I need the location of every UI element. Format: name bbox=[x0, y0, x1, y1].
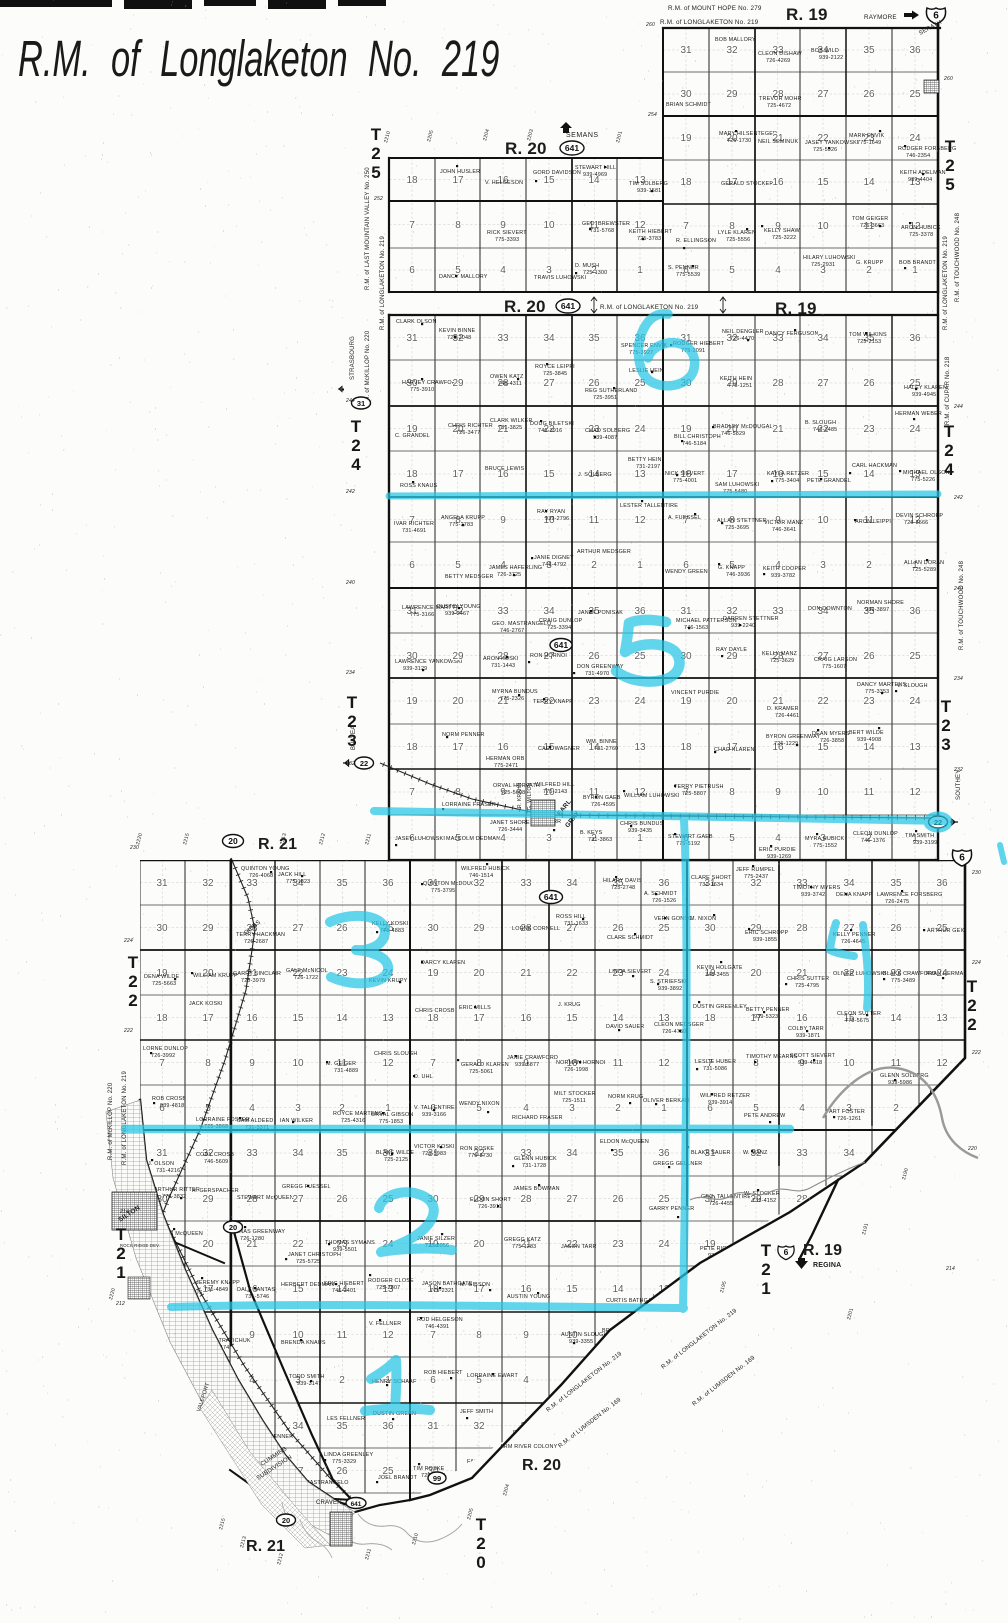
svg-text:27: 27 bbox=[566, 1194, 578, 1205]
svg-text:746-4792: 746-4792 bbox=[542, 562, 566, 568]
svg-text:T: T bbox=[941, 697, 952, 716]
svg-text:23: 23 bbox=[863, 696, 875, 707]
svg-text:ELDON SHORT: ELDON SHORT bbox=[470, 1197, 512, 1203]
svg-text:NORM KRUG: NORM KRUG bbox=[608, 1094, 643, 1100]
svg-text:19: 19 bbox=[406, 696, 418, 707]
svg-text:HERMAN ORB: HERMAN ORB bbox=[486, 756, 525, 762]
svg-text:LYLE KLAREN: LYLE KLAREN bbox=[718, 230, 756, 236]
svg-text:7: 7 bbox=[159, 1058, 165, 1069]
svg-text:20: 20 bbox=[202, 1239, 214, 1250]
svg-text:20: 20 bbox=[473, 1239, 485, 1250]
svg-text:26: 26 bbox=[612, 923, 624, 934]
svg-text:36: 36 bbox=[909, 606, 921, 617]
svg-text:10: 10 bbox=[817, 787, 829, 798]
svg-text:731-5768: 731-5768 bbox=[590, 228, 614, 234]
svg-text:BETTY MEDSGER: BETTY MEDSGER bbox=[445, 574, 494, 580]
svg-text:746-4391: 746-4391 bbox=[425, 1324, 449, 1330]
svg-text:939-3892: 939-3892 bbox=[658, 986, 682, 992]
svg-text:5: 5 bbox=[455, 560, 461, 571]
svg-text:731-2197: 731-2197 bbox=[636, 464, 660, 470]
svg-text:214: 214 bbox=[945, 1266, 955, 1272]
svg-text:775-3353: 775-3353 bbox=[865, 689, 889, 695]
svg-text:2: 2 bbox=[476, 1534, 485, 1553]
svg-text:2: 2 bbox=[866, 560, 872, 571]
svg-text:14: 14 bbox=[336, 1013, 348, 1024]
svg-text:GREGG KATZ: GREGG KATZ bbox=[504, 1237, 541, 1243]
svg-text:MALCOLM DEDMAN: MALCOLM DEDMAN bbox=[446, 836, 500, 842]
svg-text:R.M. of LONGLAKETON No. 219: R.M. of LONGLAKETON No. 219 bbox=[122, 1071, 128, 1165]
svg-text:99: 99 bbox=[433, 1474, 441, 1483]
svg-text:35: 35 bbox=[588, 333, 600, 344]
svg-text:36: 36 bbox=[658, 1148, 670, 1159]
svg-text:SAM ALDEED: SAM ALDEED bbox=[237, 1118, 273, 1124]
svg-text:13: 13 bbox=[634, 742, 646, 753]
svg-text:939-3897: 939-3897 bbox=[865, 607, 889, 613]
svg-text:CHRIS BUNDUS: CHRIS BUNDUS bbox=[620, 821, 664, 827]
svg-text:641: 641 bbox=[565, 143, 579, 153]
svg-text:20: 20 bbox=[229, 1223, 237, 1232]
svg-text:30: 30 bbox=[156, 923, 168, 934]
svg-text:CRAIG DUNLOP: CRAIG DUNLOP bbox=[539, 618, 583, 624]
svg-text:CHAD SOLBERG: CHAD SOLBERG bbox=[585, 428, 630, 434]
svg-text:WENDY NIXON: WENDY NIXON bbox=[459, 1101, 500, 1107]
svg-text:BRUCE LEWIS: BRUCE LEWIS bbox=[485, 466, 525, 472]
svg-text:726-3566: 726-3566 bbox=[904, 520, 928, 526]
svg-text:7: 7 bbox=[409, 220, 415, 231]
svg-text:AUSTIN SLOUGH: AUSTIN SLOUGH bbox=[561, 1332, 608, 1338]
svg-text:775-1607: 775-1607 bbox=[822, 664, 846, 670]
svg-text:LORNE CORNELL: LORNE CORNELL bbox=[512, 926, 560, 932]
svg-text:1: 1 bbox=[116, 1263, 125, 1282]
svg-text:16: 16 bbox=[520, 1013, 532, 1024]
svg-text:726-4470: 726-4470 bbox=[730, 336, 754, 342]
svg-text:9: 9 bbox=[775, 787, 781, 798]
svg-text:D. UHL: D. UHL bbox=[414, 1074, 433, 1080]
svg-text:939-2467: 939-2467 bbox=[445, 611, 469, 617]
svg-text:1: 1 bbox=[661, 1103, 667, 1114]
svg-text:775-2437: 775-2437 bbox=[744, 874, 768, 880]
svg-text:232: 232 bbox=[345, 761, 355, 767]
svg-text:641: 641 bbox=[554, 640, 568, 650]
svg-text:BETTY HEIN: BETTY HEIN bbox=[628, 457, 662, 463]
svg-text:24: 24 bbox=[634, 424, 646, 435]
svg-text:ERIC HIEBERT: ERIC HIEBERT bbox=[324, 1281, 365, 1287]
svg-text:11: 11 bbox=[613, 1058, 624, 1069]
svg-text:939-3199: 939-3199 bbox=[913, 840, 937, 846]
svg-text:222: 222 bbox=[971, 1050, 981, 1056]
svg-text:7: 7 bbox=[683, 221, 689, 232]
svg-text:775-2321: 775-2321 bbox=[430, 1288, 454, 1294]
svg-text:R. 19: R. 19 bbox=[775, 299, 817, 318]
svg-text:16: 16 bbox=[497, 742, 509, 753]
svg-text:14: 14 bbox=[863, 742, 875, 753]
svg-text:12: 12 bbox=[382, 1330, 394, 1341]
svg-text:NORM PENNER: NORM PENNER bbox=[442, 732, 485, 738]
svg-text:726-2687: 726-2687 bbox=[244, 939, 268, 945]
svg-text:23: 23 bbox=[588, 696, 600, 707]
svg-text:DOUG BILETSKI: DOUG BILETSKI bbox=[530, 421, 574, 427]
svg-text:725-1300: 725-1300 bbox=[583, 270, 607, 276]
svg-text:CLEON DISHAW: CLEON DISHAW bbox=[758, 51, 803, 57]
svg-text:25: 25 bbox=[658, 1194, 670, 1205]
svg-text:34: 34 bbox=[843, 878, 855, 889]
svg-text:20: 20 bbox=[726, 696, 738, 707]
svg-text:BRADLEY McDOUGALL: BRADLEY McDOUGALL bbox=[713, 424, 776, 430]
svg-text:244: 244 bbox=[345, 398, 355, 404]
svg-text:725-3951: 725-3951 bbox=[593, 395, 617, 401]
svg-text:234: 234 bbox=[345, 670, 355, 676]
svg-text:BLAKE SAUER: BLAKE SAUER bbox=[691, 1150, 731, 1156]
svg-text:HERMAN WEBER: HERMAN WEBER bbox=[895, 411, 942, 417]
svg-text:TREVOR MOHR: TREVOR MOHR bbox=[759, 96, 802, 102]
svg-text:31: 31 bbox=[680, 45, 692, 56]
svg-text:V. SLOUGH: V. SLOUGH bbox=[897, 683, 928, 689]
svg-text:BULYEA: BULYEA bbox=[351, 726, 357, 750]
svg-text:CLARE SCHMIDT: CLARE SCHMIDT bbox=[607, 935, 654, 941]
svg-text:939-2122: 939-2122 bbox=[819, 55, 843, 61]
svg-text:4: 4 bbox=[799, 1103, 805, 1114]
svg-text:KAYLA RETZER: KAYLA RETZER bbox=[767, 471, 809, 477]
svg-text:8: 8 bbox=[455, 220, 461, 231]
svg-text:9: 9 bbox=[249, 1058, 255, 1069]
svg-text:12: 12 bbox=[634, 515, 646, 526]
svg-text:939-5986: 939-5986 bbox=[888, 1080, 912, 1086]
svg-text:16: 16 bbox=[772, 177, 784, 188]
svg-text:31: 31 bbox=[680, 606, 692, 617]
svg-text:726-3992: 726-3992 bbox=[151, 1053, 175, 1059]
svg-text:725-5663: 725-5663 bbox=[152, 981, 176, 987]
svg-text:17: 17 bbox=[452, 175, 464, 186]
svg-text:G. KRUPP: G. KRUPP bbox=[856, 260, 884, 266]
svg-text:ROB HIEBERT: ROB HIEBERT bbox=[424, 1370, 463, 1376]
svg-text:13: 13 bbox=[909, 742, 921, 753]
svg-text:34: 34 bbox=[292, 1421, 304, 1432]
svg-text:775-3404: 775-3404 bbox=[775, 478, 799, 484]
svg-text:726-4068: 726-4068 bbox=[249, 873, 273, 879]
svg-text:775-5539: 775-5539 bbox=[676, 272, 700, 278]
svg-text:32: 32 bbox=[202, 878, 214, 889]
svg-text:15: 15 bbox=[543, 175, 555, 186]
svg-text:939-5323: 939-5323 bbox=[754, 1014, 778, 1020]
svg-text:775-4001: 775-4001 bbox=[673, 478, 697, 484]
svg-text:2: 2 bbox=[893, 1103, 899, 1114]
svg-text:R. 19: R. 19 bbox=[786, 5, 828, 24]
svg-text:4: 4 bbox=[249, 1103, 255, 1114]
svg-text:T: T bbox=[116, 1225, 127, 1244]
svg-text:R.M. of MOUNT HOPE No. 279: R.M. of MOUNT HOPE No. 279 bbox=[668, 5, 762, 12]
svg-text:15: 15 bbox=[543, 469, 555, 480]
svg-text:14: 14 bbox=[863, 177, 875, 188]
svg-text:725-2931: 725-2931 bbox=[811, 262, 835, 268]
svg-text:TODD SMITH: TODD SMITH bbox=[289, 1374, 324, 1380]
svg-text:725-3845: 725-3845 bbox=[543, 371, 567, 377]
svg-text:27: 27 bbox=[817, 89, 829, 100]
svg-text:R. 20: R. 20 bbox=[522, 1457, 561, 1474]
svg-text:731-4849: 731-4849 bbox=[204, 1287, 228, 1293]
svg-text:11: 11 bbox=[337, 1330, 348, 1341]
svg-text:3: 3 bbox=[941, 735, 950, 754]
svg-text:746-3641: 746-3641 bbox=[772, 527, 796, 533]
svg-text:J. SOLBERG: J. SOLBERG bbox=[578, 472, 612, 478]
svg-text:14: 14 bbox=[890, 1013, 902, 1024]
svg-text:14: 14 bbox=[863, 469, 875, 480]
svg-text:4: 4 bbox=[523, 1375, 529, 1386]
svg-text:32: 32 bbox=[726, 45, 738, 56]
svg-text:725-5556: 725-5556 bbox=[726, 237, 750, 243]
svg-text:4: 4 bbox=[500, 833, 506, 844]
svg-text:T: T bbox=[476, 1515, 487, 1534]
svg-text:31: 31 bbox=[156, 878, 168, 889]
svg-text:725-3222: 725-3222 bbox=[772, 235, 796, 241]
svg-text:ARM RIVER COLONY: ARM RIVER COLONY bbox=[500, 1444, 558, 1450]
svg-text:726-3725: 726-3725 bbox=[497, 572, 521, 578]
svg-text:35: 35 bbox=[890, 878, 902, 889]
svg-text:24: 24 bbox=[909, 424, 921, 435]
svg-text:GERALD KLAREN: GERALD KLAREN bbox=[461, 1062, 509, 1068]
svg-text:24: 24 bbox=[658, 968, 670, 979]
svg-text:26: 26 bbox=[336, 1466, 348, 1477]
svg-text:242: 242 bbox=[953, 495, 963, 501]
svg-text:RICHARD FRASER: RICHARD FRASER bbox=[512, 1115, 563, 1121]
svg-text:CRAVEN: CRAVEN bbox=[316, 1500, 342, 1506]
svg-text:244: 244 bbox=[953, 404, 963, 410]
svg-text:726-3858: 726-3858 bbox=[820, 738, 844, 744]
svg-text:2: 2 bbox=[941, 716, 950, 735]
svg-text:725-4672: 725-4672 bbox=[767, 103, 791, 109]
svg-text:A. SCHMIDT: A. SCHMIDT bbox=[644, 891, 678, 897]
svg-text:ARON HUBICK: ARON HUBICK bbox=[901, 225, 941, 231]
svg-text:25: 25 bbox=[634, 651, 646, 662]
svg-text:R.M. of McKILLOP No. 220: R.M. of McKILLOP No. 220 bbox=[365, 330, 371, 408]
svg-text:746-5609: 746-5609 bbox=[204, 1159, 228, 1165]
svg-text:36: 36 bbox=[909, 333, 921, 344]
svg-text:5: 5 bbox=[729, 833, 735, 844]
svg-text:CRAIG LARSON: CRAIG LARSON bbox=[814, 657, 857, 663]
svg-text:731-4889: 731-4889 bbox=[334, 1068, 358, 1074]
svg-text:KEITH COOPER: KEITH COOPER bbox=[763, 566, 806, 572]
svg-text:15: 15 bbox=[292, 1013, 304, 1024]
svg-text:21: 21 bbox=[520, 968, 532, 979]
svg-text:726-3444: 726-3444 bbox=[498, 827, 522, 833]
svg-text:IVAR RICHTER: IVAR RICHTER bbox=[394, 521, 434, 527]
svg-text:725-5061: 725-5061 bbox=[469, 1069, 493, 1075]
svg-text:939-2240: 939-2240 bbox=[731, 623, 755, 629]
svg-text:35: 35 bbox=[612, 1148, 624, 1159]
svg-text:31: 31 bbox=[156, 1148, 168, 1159]
svg-text:230: 230 bbox=[129, 845, 139, 851]
svg-text:6: 6 bbox=[959, 853, 965, 864]
svg-text:8: 8 bbox=[205, 1058, 211, 1069]
svg-text:TOM WILKINS: TOM WILKINS bbox=[849, 332, 887, 338]
svg-text:746-2354: 746-2354 bbox=[906, 153, 930, 159]
svg-text:775-3489: 775-3489 bbox=[891, 978, 915, 984]
svg-text:18: 18 bbox=[704, 1013, 716, 1024]
svg-text:4: 4 bbox=[944, 460, 954, 479]
svg-text:33: 33 bbox=[246, 878, 258, 889]
svg-text:LORNE DUNLOP: LORNE DUNLOP bbox=[143, 1046, 188, 1052]
svg-text:725-1511: 725-1511 bbox=[562, 1098, 586, 1104]
svg-text:KEVIN HOLGATE: KEVIN HOLGATE bbox=[697, 965, 743, 971]
svg-text:V. FELLNER: V. FELLNER bbox=[369, 1321, 401, 1327]
svg-text:MYRNA BUNDUS: MYRNA BUNDUS bbox=[492, 689, 538, 695]
svg-text:35: 35 bbox=[336, 1421, 348, 1432]
svg-text:JOHN HUSLER: JOHN HUSLER bbox=[440, 169, 480, 175]
svg-text:23: 23 bbox=[863, 424, 875, 435]
svg-text:R.M. of TOUCHWOOD No. 248: R.M. of TOUCHWOOD No. 248 bbox=[955, 212, 961, 302]
svg-text:WILLIAM LUHOWSKI: WILLIAM LUHOWSKI bbox=[624, 793, 680, 799]
svg-text:34: 34 bbox=[543, 606, 555, 617]
svg-text:10: 10 bbox=[292, 1058, 304, 1069]
svg-text:HARVEY CRAWFORD: HARVEY CRAWFORD bbox=[402, 380, 460, 386]
svg-text:18: 18 bbox=[680, 742, 692, 753]
svg-text:731-5086: 731-5086 bbox=[703, 1066, 727, 1072]
svg-text:731-1633: 731-1633 bbox=[564, 921, 588, 927]
svg-text:S. PENNER: S. PENNER bbox=[668, 265, 699, 271]
svg-text:MILT STOCKER: MILT STOCKER bbox=[554, 1091, 596, 1097]
svg-text:R.M. of CUPAR No. 218: R.M. of CUPAR No. 218 bbox=[945, 356, 951, 425]
svg-text:15: 15 bbox=[566, 1284, 578, 1295]
svg-text:26: 26 bbox=[588, 651, 600, 662]
svg-text:3: 3 bbox=[820, 560, 826, 571]
svg-text:KEITH HIEBERT: KEITH HIEBERT bbox=[629, 229, 673, 235]
svg-text:STRASBOURG: STRASBOURG bbox=[350, 336, 356, 380]
svg-text:731-4970: 731-4970 bbox=[585, 671, 609, 677]
svg-text:KEVIN BINNE: KEVIN BINNE bbox=[439, 328, 476, 334]
svg-text:731-4152: 731-4152 bbox=[752, 1198, 776, 1204]
svg-text:TERRY KNAPP: TERRY KNAPP bbox=[533, 699, 573, 705]
svg-text:COLBY TARR: COLBY TARR bbox=[788, 1026, 824, 1032]
svg-text:JANET SHORE: JANET SHORE bbox=[490, 820, 530, 826]
svg-text:725-5807: 725-5807 bbox=[682, 791, 706, 797]
svg-text:B. SLOUGH: B. SLOUGH bbox=[805, 420, 836, 426]
svg-text:32: 32 bbox=[473, 878, 485, 889]
svg-text:240: 240 bbox=[345, 580, 355, 586]
svg-text:ROSS HILL: ROSS HILL bbox=[556, 914, 586, 920]
svg-text:31: 31 bbox=[427, 1421, 439, 1432]
svg-text:J. OLSON: J. OLSON bbox=[148, 1161, 174, 1167]
svg-text:12: 12 bbox=[382, 1058, 394, 1069]
svg-text:30: 30 bbox=[704, 923, 716, 934]
svg-text:ARON LEIPPI: ARON LEIPPI bbox=[855, 519, 891, 525]
svg-text:32: 32 bbox=[473, 1421, 485, 1432]
svg-text:ARTHUR MEDSGER: ARTHUR MEDSGER bbox=[577, 549, 631, 555]
svg-text:CODY CROSB: CODY CROSB bbox=[196, 1152, 234, 1158]
svg-text:26: 26 bbox=[863, 651, 875, 662]
svg-text:SEMANS: SEMANS bbox=[566, 132, 599, 139]
svg-text:G. KNAPP: G. KNAPP bbox=[718, 565, 745, 571]
svg-text:30: 30 bbox=[427, 923, 439, 934]
svg-text:3: 3 bbox=[546, 833, 552, 844]
svg-text:BERT WILDE: BERT WILDE bbox=[849, 730, 884, 736]
svg-text:HILARY LUHOWSKI: HILARY LUHOWSKI bbox=[803, 255, 856, 261]
svg-text:33: 33 bbox=[497, 333, 509, 344]
svg-text:726-4455: 726-4455 bbox=[709, 1201, 733, 1207]
svg-text:JEFF SMITH: JEFF SMITH bbox=[460, 1409, 493, 1415]
svg-text:726-4269: 726-4269 bbox=[766, 58, 790, 64]
svg-text:11: 11 bbox=[864, 787, 875, 798]
svg-text:CARL WAGNER: CARL WAGNER bbox=[538, 746, 580, 752]
svg-text:731-1443: 731-1443 bbox=[491, 663, 515, 669]
svg-text:RAY RYAN: RAY RYAN bbox=[537, 509, 565, 515]
svg-text:1: 1 bbox=[637, 560, 643, 571]
svg-text:20: 20 bbox=[750, 968, 762, 979]
svg-text:34: 34 bbox=[566, 878, 578, 889]
svg-text:25: 25 bbox=[658, 923, 670, 934]
svg-text:11: 11 bbox=[589, 515, 600, 526]
svg-text:JANIE SILZER: JANIE SILZER bbox=[417, 1236, 455, 1242]
svg-text:20: 20 bbox=[228, 836, 238, 846]
svg-text:DARREN STETTNER: DARREN STETTNER bbox=[723, 616, 779, 622]
svg-text:R. 21: R. 21 bbox=[258, 836, 297, 853]
svg-text:CHRIS CROSB: CHRIS CROSB bbox=[415, 1008, 455, 1014]
svg-text:726-1261: 726-1261 bbox=[837, 1116, 861, 1122]
svg-text:BOB MALLORY: BOB MALLORY bbox=[715, 37, 756, 43]
svg-text:16: 16 bbox=[246, 1013, 258, 1024]
svg-text:12: 12 bbox=[936, 1058, 948, 1069]
svg-text:BYRON GAEB: BYRON GAEB bbox=[583, 795, 621, 801]
svg-text:726-1998: 726-1998 bbox=[564, 1067, 588, 1073]
svg-text:6: 6 bbox=[409, 560, 415, 571]
svg-text:M. GEIGER: M. GEIGER bbox=[326, 1061, 356, 1067]
svg-text:ROCK RIDGE DEV.: ROCK RIDGE DEV. bbox=[120, 1243, 160, 1248]
svg-text:ERIC SCHROPP: ERIC SCHROPP bbox=[745, 930, 789, 936]
svg-text:R. 20: R. 20 bbox=[505, 139, 547, 158]
svg-text:775-2471: 775-2471 bbox=[494, 763, 518, 769]
svg-text:939-3914: 939-3914 bbox=[708, 1100, 732, 1106]
svg-text:775-3393: 775-3393 bbox=[495, 237, 519, 243]
svg-text:CHAD KLAREN: CHAD KLAREN bbox=[714, 747, 755, 753]
svg-text:27: 27 bbox=[292, 1194, 304, 1205]
svg-text:MICHAEL OLSON: MICHAEL OLSON bbox=[903, 470, 950, 476]
svg-text:731-1728: 731-1728 bbox=[522, 1163, 546, 1169]
svg-text:2: 2 bbox=[615, 1103, 621, 1114]
svg-text:726-1722: 726-1722 bbox=[294, 975, 318, 981]
svg-text:725-5926: 725-5926 bbox=[813, 147, 837, 153]
svg-text:R.M. of LAST MOUNTAIN VALLEY N: R.M. of LAST MOUNTAIN VALLEY No. 250 bbox=[365, 167, 371, 290]
svg-text:746-1514: 746-1514 bbox=[469, 873, 493, 879]
svg-text:939-3742: 939-3742 bbox=[801, 892, 825, 898]
svg-text:13: 13 bbox=[634, 469, 646, 480]
svg-text:T: T bbox=[347, 693, 358, 712]
svg-text:260: 260 bbox=[645, 22, 655, 28]
svg-text:RICK SIEVERT: RICK SIEVERT bbox=[487, 230, 527, 236]
svg-text:BRENDA KNAUS: BRENDA KNAUS bbox=[281, 1340, 326, 1346]
svg-text:29: 29 bbox=[473, 923, 485, 934]
svg-text:16: 16 bbox=[796, 1013, 808, 1024]
svg-text:CLEON MEDSGER: CLEON MEDSGER bbox=[654, 1022, 704, 1028]
svg-text:20: 20 bbox=[452, 696, 464, 707]
svg-text:2: 2 bbox=[866, 265, 872, 276]
svg-text:939-4969: 939-4969 bbox=[583, 172, 607, 178]
svg-text:775-1853: 775-1853 bbox=[379, 1119, 403, 1125]
svg-text:HILARY DAVIS: HILARY DAVIS bbox=[603, 878, 642, 884]
svg-text:T: T bbox=[967, 977, 978, 996]
svg-text:30: 30 bbox=[680, 89, 692, 100]
svg-text:746-5184: 746-5184 bbox=[682, 441, 706, 447]
svg-text:LESTER TALLENTIRE: LESTER TALLENTIRE bbox=[620, 503, 678, 509]
svg-text:RAY DAYLE: RAY DAYLE bbox=[716, 647, 747, 653]
svg-text:KELLY SHAW: KELLY SHAW bbox=[764, 228, 800, 234]
svg-text:24: 24 bbox=[909, 696, 921, 707]
svg-text:29: 29 bbox=[726, 89, 738, 100]
svg-text:LINDA GREENLEY: LINDA GREENLEY bbox=[324, 1452, 373, 1458]
svg-text:JANET PONISAK: JANET PONISAK bbox=[578, 610, 623, 616]
svg-text:JASEY YANKOWSKI: JASEY YANKOWSKI bbox=[805, 140, 859, 146]
svg-text:775-3166: 775-3166 bbox=[410, 612, 434, 618]
svg-text:10: 10 bbox=[843, 1058, 855, 1069]
svg-text:220: 220 bbox=[967, 1146, 977, 1152]
svg-text:731-3863: 731-3863 bbox=[588, 837, 612, 843]
